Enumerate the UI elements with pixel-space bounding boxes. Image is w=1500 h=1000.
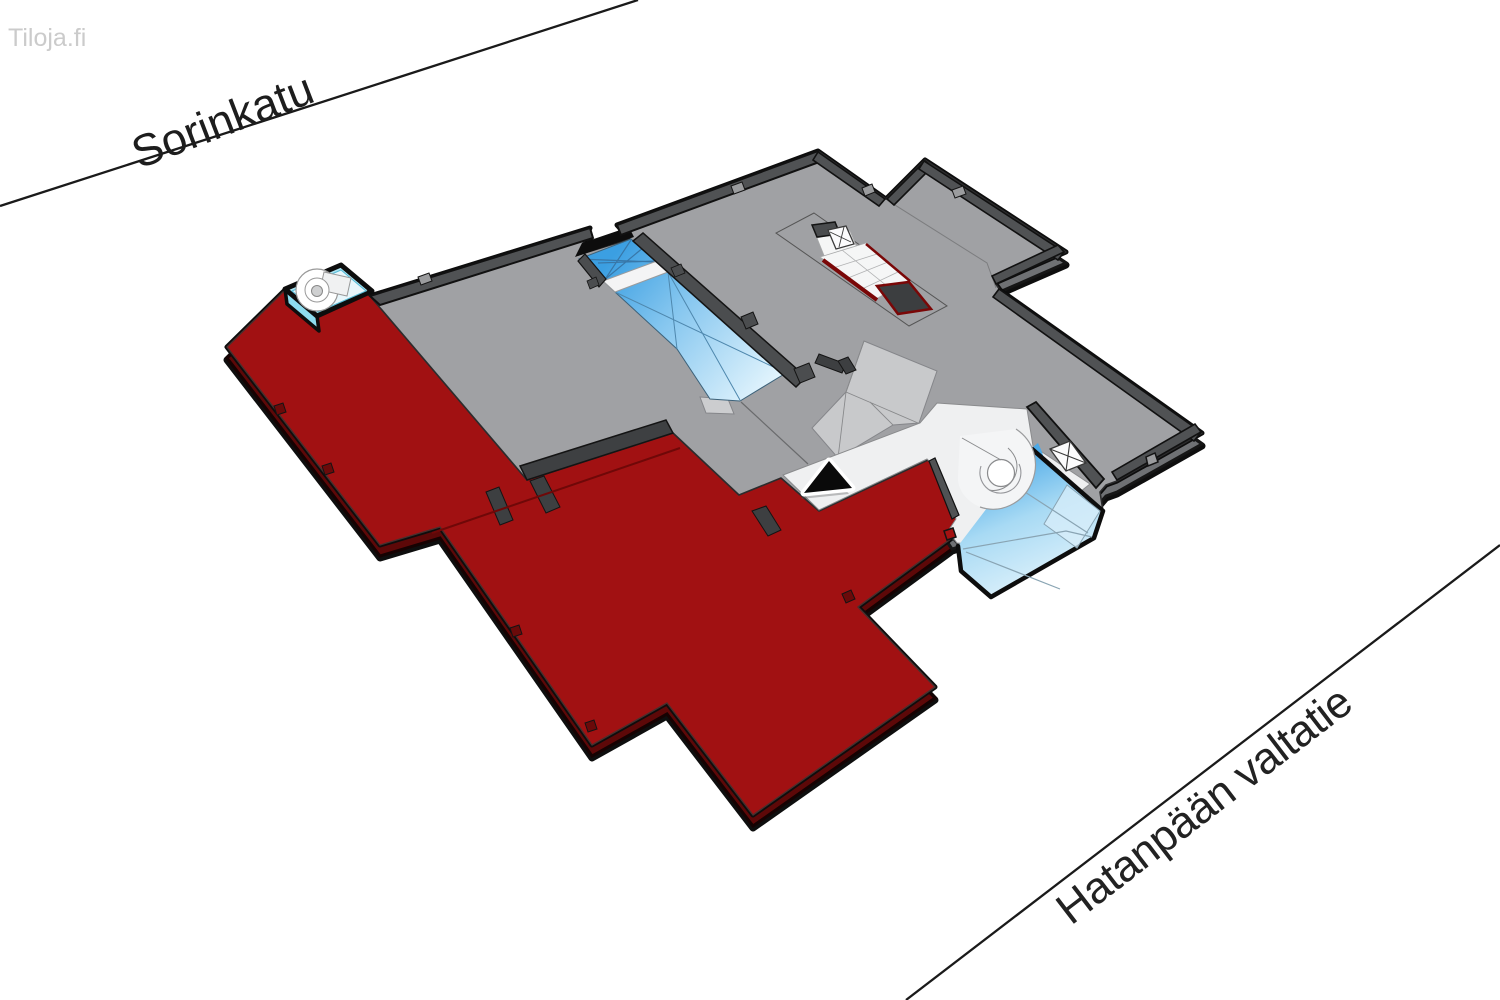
svg-text:Tiloja.fi: Tiloja.fi [8,24,86,52]
